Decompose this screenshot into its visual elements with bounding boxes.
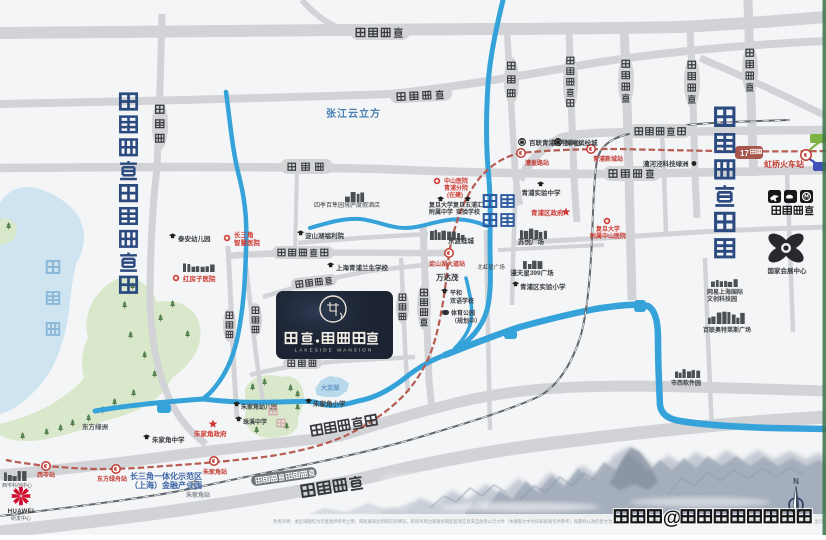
svg-text:珠溪中学: 珠溪中学 (243, 418, 267, 426)
svg-text:漫天星399广场: 漫天星399广场 (510, 268, 554, 277)
svg-text:万达茂: 万达茂 (435, 272, 459, 282)
svg-text:漕河泾科技绿洲: 漕河泾科技绿洲 (643, 159, 689, 168)
svg-text:复旦五浦汇: 复旦五浦汇 (452, 201, 483, 209)
svg-text:实验学校: 实验学校 (456, 208, 481, 216)
svg-text:@: @ (663, 508, 682, 529)
svg-text:青浦分院: 青浦分院 (444, 184, 468, 192)
svg-text:长三角一体化示范区: 长三角一体化示范区 (130, 471, 202, 481)
svg-text:双语学校: 双语学校 (450, 297, 475, 305)
svg-text:朱家角中学: 朱家角中学 (152, 435, 185, 444)
svg-text:复旦大学: 复旦大学 (428, 201, 453, 209)
svg-text:HUAWEI: HUAWEI (8, 509, 34, 515)
svg-text:复旦大学: 复旦大学 (595, 225, 620, 233)
svg-text:朱家角站: 朱家角站 (186, 491, 210, 499)
svg-text:虹桥火车站: 虹桥火车站 (764, 159, 804, 169)
svg-text:中山医院: 中山医院 (444, 177, 468, 185)
svg-text:青浦新城站: 青浦新城站 (593, 155, 623, 163)
svg-text:青浦区政府: 青浦区政府 (531, 208, 564, 217)
svg-text:市西软件园: 市西软件园 (671, 379, 701, 387)
svg-text:LAKESIDE MANSION: LAKESIDE MANSION (295, 348, 374, 353)
svg-text:百联奥特莱斯广场: 百联奥特莱斯广场 (703, 326, 751, 334)
svg-text:东方绿舟站: 东方绿舟站 (97, 475, 127, 483)
svg-text:智慧医院: 智慧医院 (234, 238, 261, 247)
svg-text:绿地缤纷城: 绿地缤纷城 (565, 138, 598, 147)
svg-text:青浦实验中学: 青浦实验中学 (522, 188, 562, 197)
svg-text:泰安幼儿园: 泰安幼儿园 (177, 234, 211, 243)
svg-text:苏悦广场: 苏悦广场 (518, 237, 545, 246)
svg-text:青浦区实验小学: 青浦区实验小学 (520, 282, 566, 291)
svg-text:淀山湖福利院: 淀山湖福利院 (305, 231, 345, 240)
svg-text:长三角: 长三角 (234, 230, 254, 239)
svg-text:朱家角政府: 朱家角政府 (194, 429, 227, 438)
svg-text:朱家角小学: 朱家角小学 (313, 399, 346, 408)
svg-text:（规划中）: （规划中） (451, 317, 481, 325)
svg-text:大淀湖: 大淀湖 (321, 384, 339, 392)
svg-text:体育公园: 体育公园 (451, 309, 475, 317)
svg-text:平和: 平和 (450, 289, 462, 297)
svg-text:东渡蛙城: 东渡蛙城 (448, 236, 475, 245)
svg-text:文创科技园: 文创科技园 (706, 295, 737, 303)
svg-text:N: N (793, 477, 799, 486)
svg-text:附属中学: 附属中学 (429, 208, 453, 216)
svg-text:朱家角站: 朱家角站 (203, 468, 227, 476)
svg-text:网易上海国际: 网易上海国际 (707, 288, 743, 296)
svg-text:西岑站: 西岑站 (37, 471, 55, 479)
svg-text:张江云立方: 张江云立方 (326, 107, 381, 120)
svg-text:上海青浦兰生学校: 上海青浦兰生学校 (336, 263, 389, 272)
svg-text:漕盈路站: 漕盈路站 (524, 159, 549, 167)
svg-text:西岑科创中心: 西岑科创中心 (2, 482, 32, 489)
svg-text:东方绿洲: 东方绿洲 (82, 422, 109, 431)
svg-text:四季百隼园境庐度假酒店: 四季百隼园境庐度假酒店 (314, 201, 380, 209)
svg-text:（上海）金融产业园: （上海）金融产业园 (130, 480, 202, 490)
svg-text:北虹星广场: 北虹星广场 (477, 263, 505, 271)
svg-text:研发中心: 研发中心 (11, 515, 31, 522)
svg-text:淀山湖大道站: 淀山湖大道站 (429, 260, 465, 268)
svg-text:红房子医院: 红房子医院 (183, 274, 216, 283)
svg-text:附属中山医院: 附属中山医院 (590, 232, 626, 240)
svg-text:(在建): (在建) (447, 191, 463, 199)
svg-text:国家会展中心: 国家会展中心 (768, 266, 808, 275)
svg-text:17: 17 (740, 149, 749, 158)
